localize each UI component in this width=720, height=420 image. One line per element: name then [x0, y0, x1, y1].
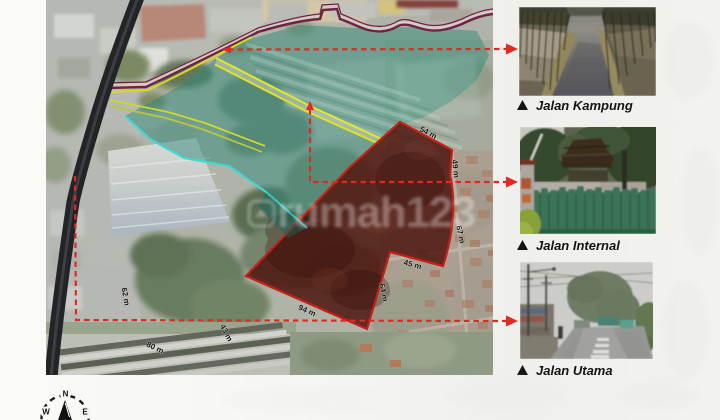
svg-text:E: E — [82, 408, 88, 417]
svg-text:W: W — [42, 408, 50, 417]
svg-text:Jalan Kampung: Jalan Kampung — [536, 98, 633, 113]
svg-text:N: N — [63, 390, 69, 399]
svg-text:Jalan Internal: Jalan Internal — [536, 238, 620, 253]
svg-text:rumah123: rumah123 — [277, 188, 475, 237]
svg-text:49 m: 49 m — [450, 159, 461, 178]
svg-text:Jalan Utama: Jalan Utama — [536, 363, 613, 378]
